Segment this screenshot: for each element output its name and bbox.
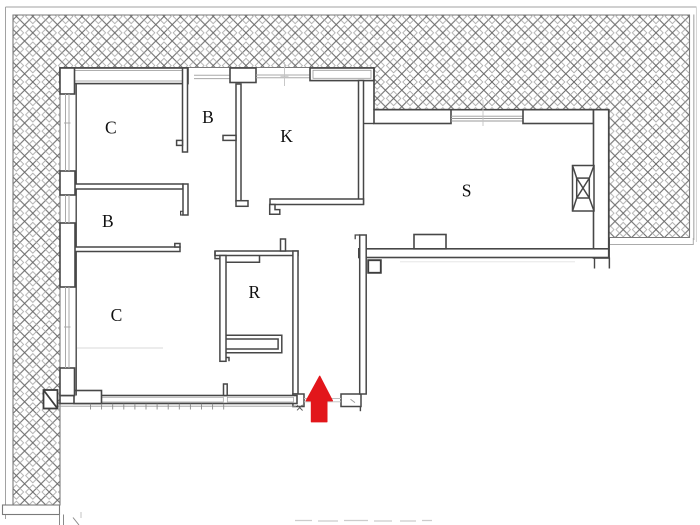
svg-text:R: R bbox=[249, 282, 261, 302]
svg-text:C: C bbox=[111, 305, 123, 325]
svg-text:C: C bbox=[105, 118, 117, 138]
svg-text:S: S bbox=[462, 181, 472, 201]
svg-text:B: B bbox=[202, 107, 214, 127]
svg-text:K: K bbox=[280, 126, 293, 146]
svg-text:B: B bbox=[102, 211, 114, 231]
